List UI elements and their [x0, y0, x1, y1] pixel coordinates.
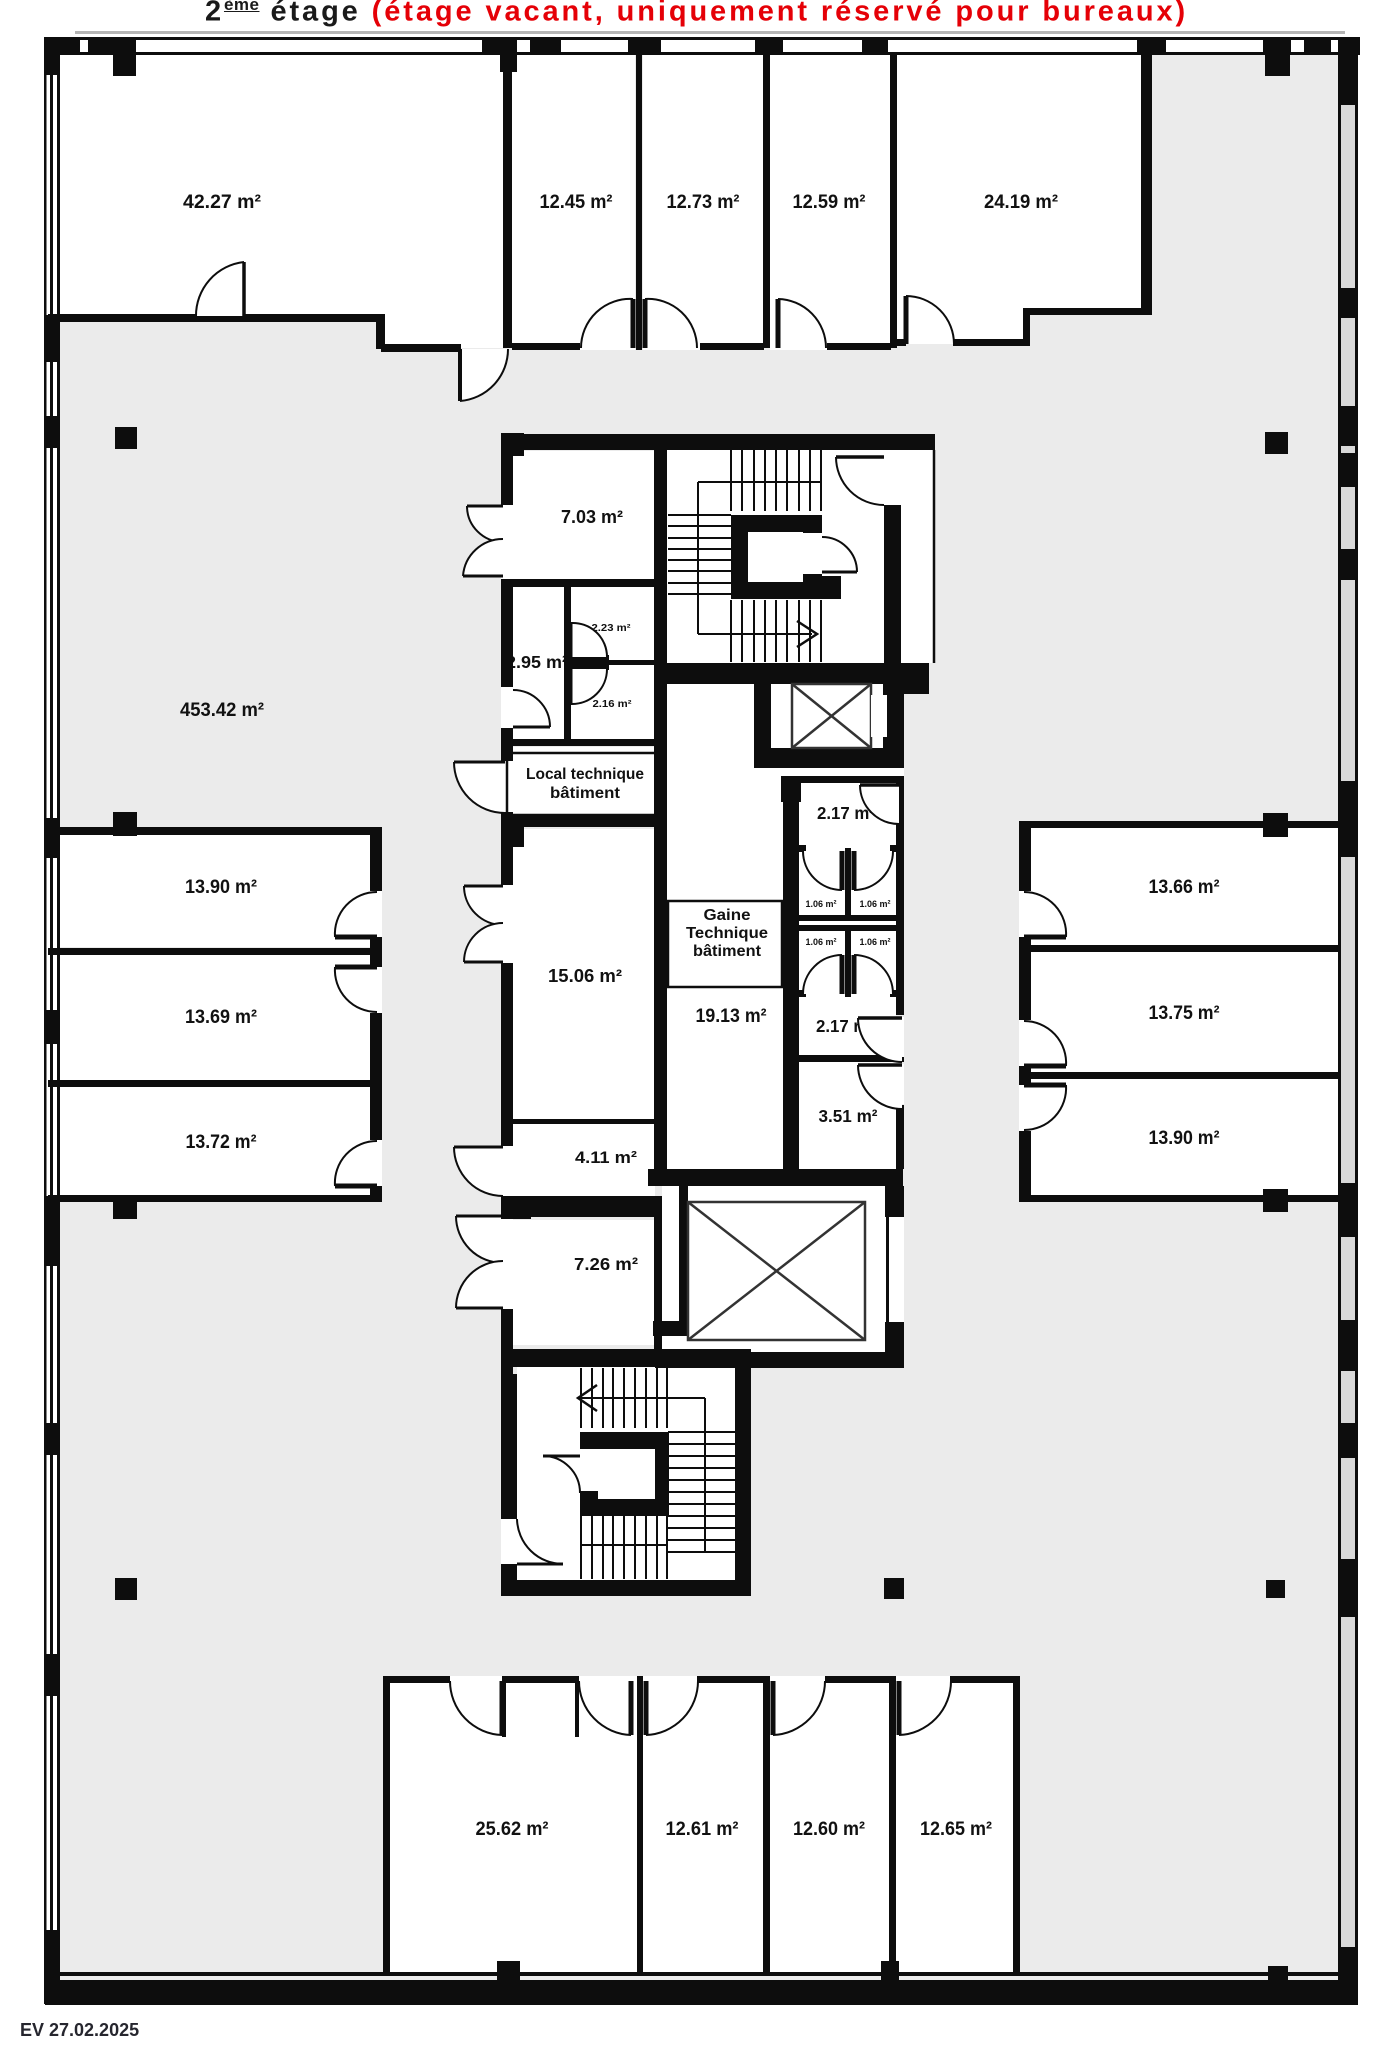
svg-text:2.16 m²: 2.16 m²	[593, 698, 633, 710]
svg-text:Gaine: Gaine	[704, 907, 751, 924]
svg-text:1.06 m²: 1.06 m²	[860, 937, 891, 948]
svg-text:453.42 m²: 453.42 m²	[180, 699, 264, 721]
svg-text:2.95 m²: 2.95 m²	[506, 652, 568, 672]
svg-text:24.19 m²: 24.19 m²	[984, 191, 1058, 213]
svg-text:12.61 m²: 12.61 m²	[666, 1818, 739, 1840]
svg-text:19.13 m²: 19.13 m²	[696, 1006, 767, 1027]
svg-text:13.66 m²: 13.66 m²	[1149, 876, 1220, 898]
svg-text:13.90 m²: 13.90 m²	[185, 876, 257, 898]
svg-text:1.06 m²: 1.06 m²	[860, 899, 891, 910]
svg-text:13.69 m²: 13.69 m²	[185, 1006, 257, 1028]
svg-text:12.60 m²: 12.60 m²	[793, 1818, 865, 1840]
svg-text:42.27 m²: 42.27 m²	[183, 191, 261, 213]
svg-text:12.73 m²: 12.73 m²	[667, 191, 740, 213]
svg-text:13.75 m²: 13.75 m²	[1149, 1002, 1220, 1024]
svg-text:7.03 m²: 7.03 m²	[561, 507, 623, 527]
svg-text:1.06 m²: 1.06 m²	[806, 899, 837, 910]
svg-text:Technique: Technique	[686, 925, 768, 942]
svg-text:13.72 m²: 13.72 m²	[186, 1131, 257, 1153]
svg-text:Local technique: Local technique	[526, 766, 644, 783]
svg-text:bâtiment: bâtiment	[693, 943, 762, 960]
svg-text:25.62 m²: 25.62 m²	[476, 1818, 549, 1840]
svg-text:4.11 m²: 4.11 m²	[575, 1148, 637, 1167]
svg-text:3.51 m²: 3.51 m²	[819, 1106, 878, 1126]
svg-text:15.06 m²: 15.06 m²	[548, 966, 622, 986]
svg-text:12.45 m²: 12.45 m²	[540, 191, 613, 213]
svg-text:12.65 m²: 12.65 m²	[920, 1818, 992, 1840]
svg-text:7.26 m²: 7.26 m²	[574, 1254, 638, 1274]
svg-text:13.90 m²: 13.90 m²	[1149, 1127, 1220, 1149]
svg-text:12.59 m²: 12.59 m²	[793, 191, 866, 213]
svg-text:bâtiment: bâtiment	[550, 785, 621, 802]
svg-text:1.06 m²: 1.06 m²	[806, 937, 837, 948]
